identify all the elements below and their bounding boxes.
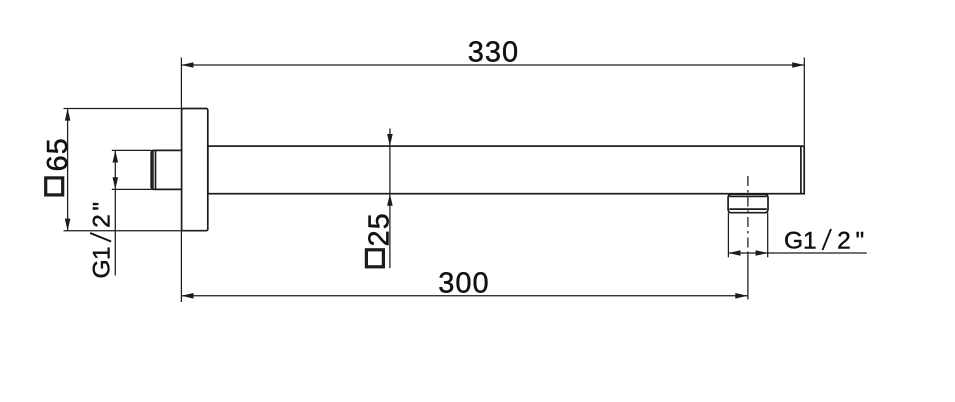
svg-text:G1 2 ": G1 2 " [784,227,864,254]
svg-text:300: 300 [438,268,489,300]
svg-text:330: 330 [468,37,519,69]
svg-text:65: 65 [42,137,74,171]
svg-text:25: 25 [363,212,395,246]
svg-text:G1 2 ": G1 2 " [89,202,116,278]
